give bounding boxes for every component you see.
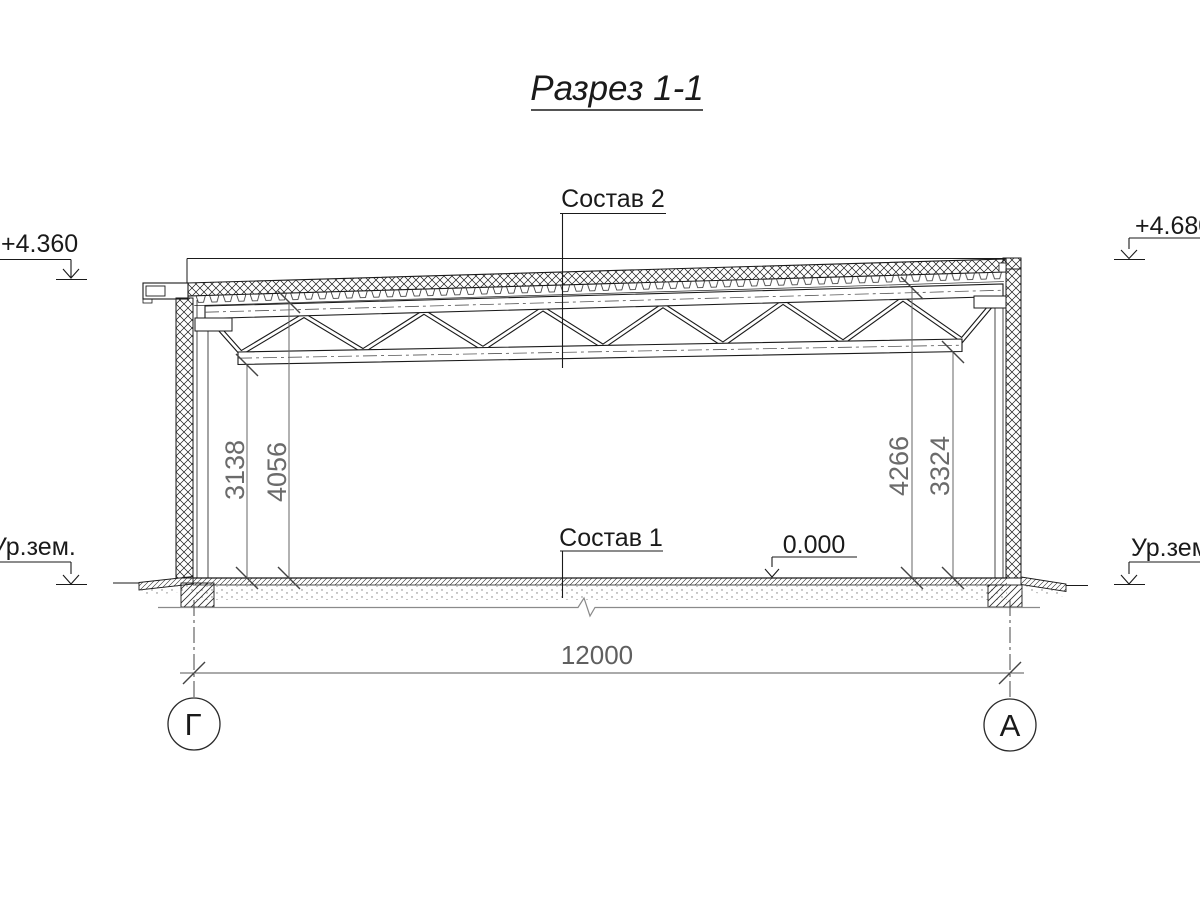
right-foundation [988,585,1022,607]
ground-level-right-label: Ур.зем. [1131,534,1200,562]
axis-label-right: А [1000,708,1021,743]
ground-level-mark-right: Ур.зем. [1114,534,1200,585]
span-dimension-value: 12000 [561,640,633,670]
roof-composition-label: Состав 2 [561,185,665,213]
drawing-title: Разрез 1-1 [530,69,703,108]
floor-composition-label: Состав 1 [559,524,663,552]
dim-right-roof-height: 4266 [884,436,914,496]
elevation-mark-left: +4.360 [0,230,87,280]
elevation-right-value: +4.680 [1135,212,1200,240]
right-truss-support-pad [974,296,1006,308]
blueprint-canvas: 12000 Г А 3138 4056 4266 3324 +4.360 +4.… [0,0,1200,900]
section-drawing: 12000 Г А 3138 4056 4266 3324 +4.360 +4.… [0,0,1200,900]
zero-level-value: 0.000 [783,531,846,559]
axis-label-left: Г [185,707,202,742]
right-apron [1021,577,1066,597]
left-truss-support-pad [195,318,232,331]
elevation-mark-right: +4.680 [1114,212,1200,260]
foundation-base-line [158,598,1040,616]
dim-left-roof-height: 4056 [262,442,292,502]
zero-level-mark: 0.000 [765,531,857,577]
ground-level-left-label: Ур.зем. [0,533,76,561]
drawing-title-block: Разрез 1-1 [530,69,703,110]
dim-right-clear-height: 3324 [925,436,955,496]
right-wall [1006,269,1021,578]
axis-bubble-right: А [984,699,1036,751]
left-wall [176,298,193,578]
floor-slab [193,578,1007,585]
elevation-left-value: +4.360 [1,230,78,258]
axis-bubble-left: Г [168,698,220,750]
floor-bedding-layer [193,586,1007,600]
ground-level-mark-left: Ур.зем. [0,533,87,585]
dim-left-clear-height: 3138 [220,440,250,500]
